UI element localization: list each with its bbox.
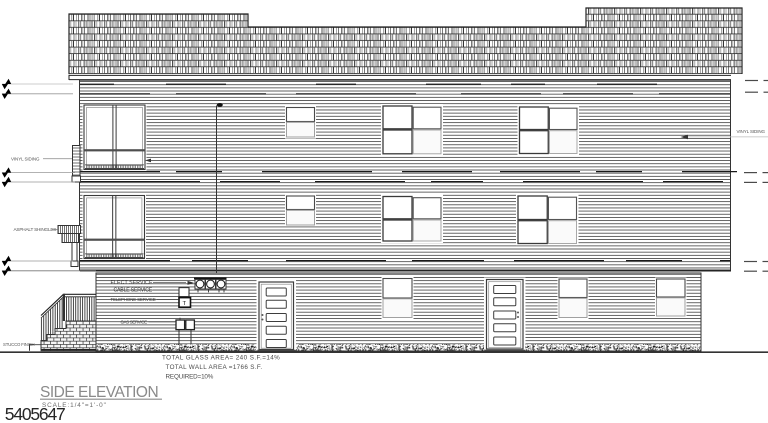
svg-text:TOTAL WALL AREA =1766 S.F.: TOTAL WALL AREA =1766 S.F. xyxy=(166,364,263,371)
svg-text:5405647: 5405647 xyxy=(5,404,65,423)
svg-text:VINYL SIDING: VINYL SIDING xyxy=(11,157,40,162)
svg-text:TOTAL GLASS AREA= 240 S.F.=1: TOTAL GLASS AREA= 240 S.F.=14% xyxy=(162,354,280,361)
svg-text:STUCCO FINISH: STUCCO FINISH xyxy=(3,342,35,347)
svg-text:CABLE SERVICE: CABLE SERVICE xyxy=(114,287,153,293)
svg-text:SIDE ELEVATION: SIDE ELEVATION xyxy=(40,384,158,401)
svg-text:T: T xyxy=(183,301,187,307)
svg-text:TELEPHONE SERVICE: TELEPHONE SERVICE xyxy=(111,297,156,302)
svg-text:GAS SERVICE: GAS SERVICE xyxy=(121,319,148,324)
svg-text:ELECT SERVICE: ELECT SERVICE xyxy=(111,280,153,286)
svg-text:VINYL SIDING: VINYL SIDING xyxy=(737,129,766,134)
svg-text:REQUIRED=10%: REQUIRED=10% xyxy=(166,374,214,381)
svg-text:ASPHALT SHINGLES: ASPHALT SHINGLES xyxy=(14,227,57,232)
